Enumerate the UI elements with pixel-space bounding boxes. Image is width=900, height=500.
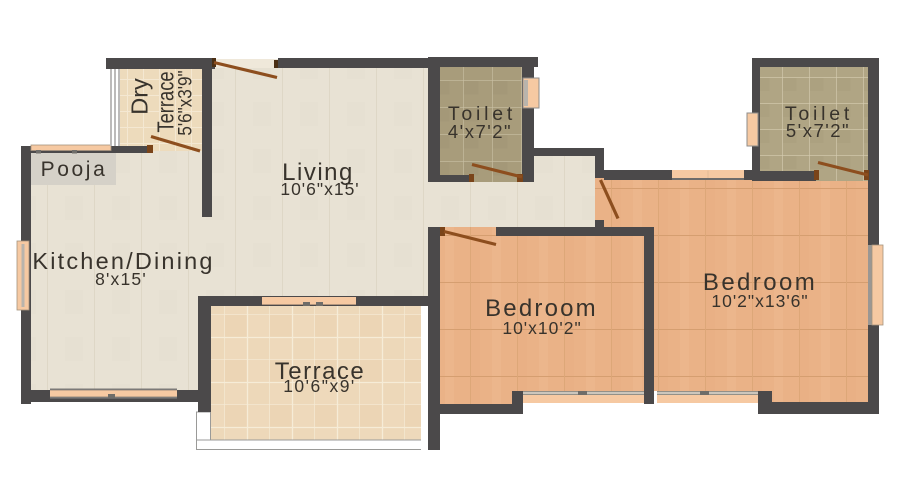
svg-text:4'x7'2": 4'x7'2" bbox=[448, 121, 512, 142]
svg-text:10'6"x15': 10'6"x15' bbox=[280, 179, 359, 199]
svg-text:10'x10'2": 10'x10'2" bbox=[502, 318, 581, 338]
svg-text:8'x15': 8'x15' bbox=[95, 269, 147, 289]
svg-text:Pooja: Pooja bbox=[41, 158, 108, 181]
svg-text:5'6"x3'9": 5'6"x3'9" bbox=[175, 70, 196, 135]
svg-text:Dry: Dry bbox=[127, 78, 153, 115]
svg-text:10'6"x9': 10'6"x9' bbox=[283, 376, 356, 396]
svg-text:5'x7'2": 5'x7'2" bbox=[786, 120, 850, 141]
svg-text:10'2"x13'6": 10'2"x13'6" bbox=[711, 291, 808, 311]
